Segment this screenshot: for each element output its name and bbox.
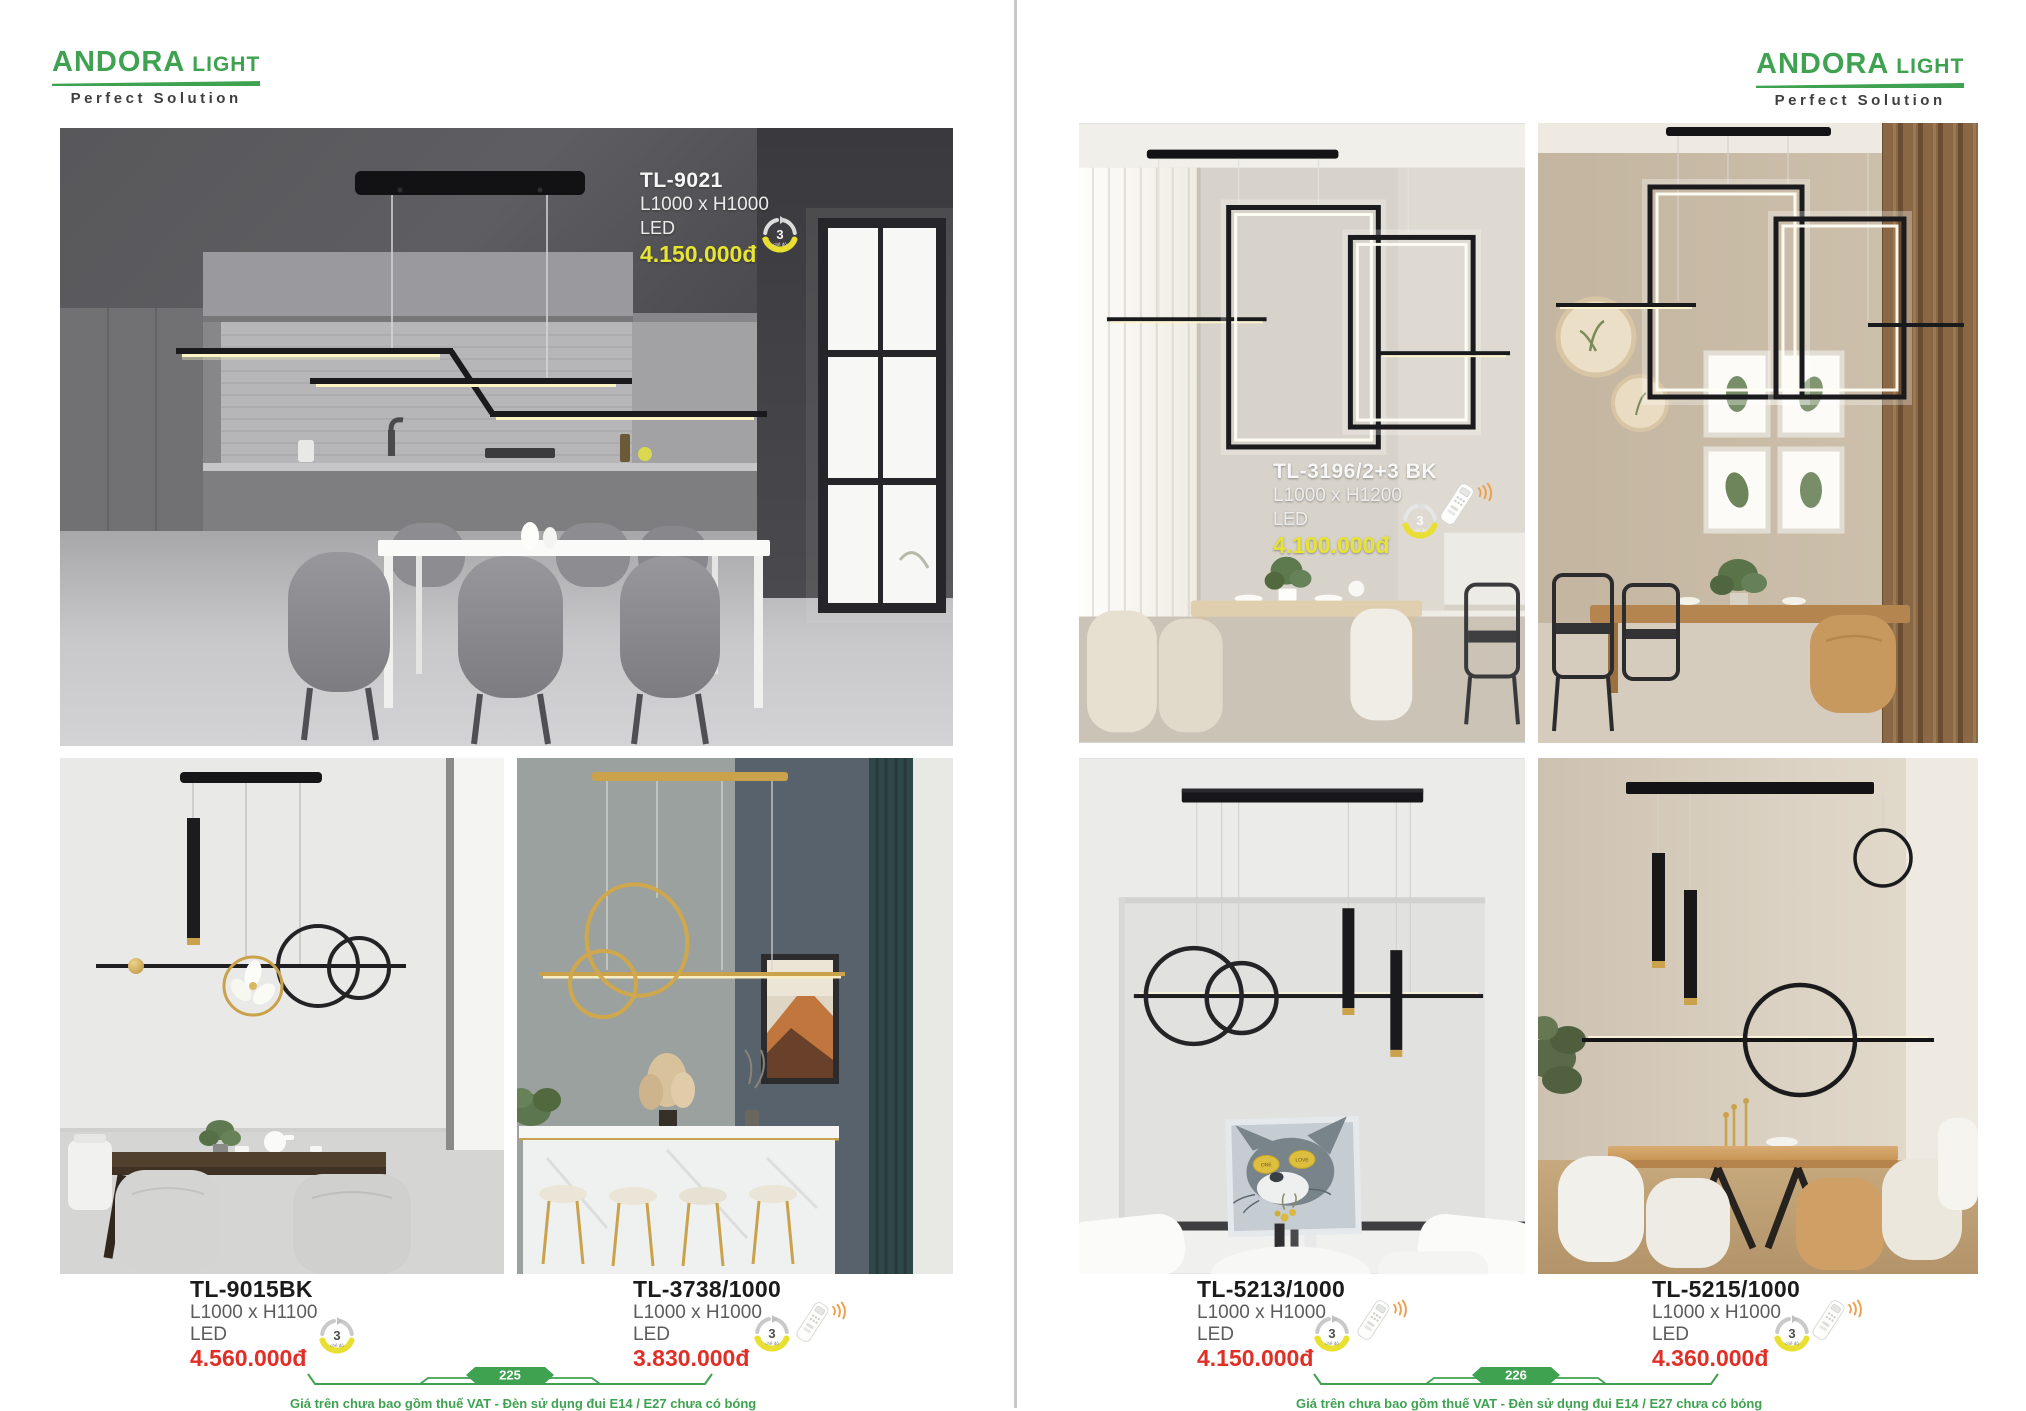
page-number-banner: 226 <box>1296 1366 1736 1390</box>
three-mode-badge: 3 chế độ <box>758 213 802 257</box>
brand-logo: ANDORA LIGHT Perfect Solution <box>1756 48 1964 109</box>
product-photo-tl-3738 <box>517 758 953 1274</box>
hero-product-info: TL-3196/2+3 BK L1000 x H1200 LED 4.100.0… <box>1273 459 1525 560</box>
product-photo-tl-5215 <box>1538 758 1978 1274</box>
page-number: 226 <box>1505 1368 1527 1383</box>
dining-scene-9015 <box>60 758 504 1274</box>
svg-text:LOVE: LOVE <box>1295 1157 1309 1163</box>
page-gutter-divider <box>1014 0 1017 1408</box>
svg-text:3: 3 <box>768 1326 775 1341</box>
brand-logo-row: ANDORA LIGHT <box>52 46 260 79</box>
dining-scene-5213: ONE LOVE <box>1079 758 1525 1274</box>
product-code: TL-9015BK <box>190 1276 390 1302</box>
brand-suffix: LIGHT <box>192 53 260 77</box>
dining-scene-3196a <box>1079 123 1525 743</box>
vat-disclaimer: Giá trên chưa bao gồm thuế VAT - Đèn sử … <box>290 1396 730 1411</box>
product-lamp-type: LED <box>190 1324 390 1345</box>
product-label-tl-5215: TL-5215/1000 L1000 x H1000 LED 4.360.000… <box>1652 1276 1882 1372</box>
brand-logo: ANDORA LIGHT Perfect Solution <box>52 46 260 107</box>
brand-underline <box>52 81 260 86</box>
three-mode-badge: 3 chế độ <box>315 1314 359 1358</box>
page-footer: 226 Giá trên chưa bao gồm thuế VAT - Đèn… <box>1296 1366 1736 1411</box>
vat-disclaimer: Giá trên chưa bao gồm thuế VAT - Đèn sử … <box>1296 1396 1736 1411</box>
svg-text:chế độ: chế độ <box>1785 1341 1799 1346</box>
page-number-banner: 225 <box>290 1366 730 1390</box>
svg-text:chế độ: chế độ <box>773 242 787 247</box>
product-size: L1000 x H1100 <box>190 1302 390 1324</box>
product-photo-tl-3196-a: TL-3196/2+3 BK L1000 x H1200 LED 4.100.0… <box>1079 123 1525 743</box>
hero-product-info: TL-9021 L1000 x H1000 LED 4.150.000đ 3 c… <box>640 168 953 269</box>
dining-scene-3738 <box>517 758 953 1274</box>
page-footer: 225 Giá trên chưa bao gồm thuế VAT - Đèn… <box>290 1366 730 1411</box>
svg-text:3: 3 <box>1788 1326 1795 1341</box>
cat-artwork: ONE LOVE <box>1225 1116 1362 1237</box>
brand-tagline: Perfect Solution <box>1756 92 1964 109</box>
brand-underline <box>1756 83 1964 88</box>
three-mode-badge-icon: 3 chế độ <box>315 1314 359 1358</box>
brand-name: ANDORA <box>52 46 185 79</box>
svg-text:3: 3 <box>1416 513 1423 528</box>
brand-suffix: LIGHT <box>1896 55 1964 79</box>
brand-name: ANDORA <box>1756 48 1889 81</box>
dining-scene-3196b <box>1538 123 1978 743</box>
product-code: TL-9021 <box>640 168 953 193</box>
product-photo-tl-5213: ONE LOVE <box>1079 758 1525 1274</box>
svg-text:ONE: ONE <box>1261 1162 1273 1168</box>
page-number: 225 <box>499 1368 521 1383</box>
product-photo-tl-9015bk <box>60 758 504 1274</box>
svg-text:chế độ: chế độ <box>330 1343 344 1348</box>
three-mode-badge-icon: 3 chế độ <box>758 213 802 257</box>
svg-text:3: 3 <box>776 227 783 242</box>
svg-text:3: 3 <box>1328 1326 1335 1341</box>
svg-text:3: 3 <box>333 1328 340 1343</box>
svg-text:chế độ: chế độ <box>1325 1341 1339 1346</box>
dining-scene-5215 <box>1538 758 1978 1274</box>
brand-logo-row: ANDORA LIGHT <box>1756 48 1964 81</box>
product-photo-tl-3196-b <box>1538 123 1978 743</box>
product-label-tl-3738: TL-3738/1000 L1000 x H1000 LED 3.830.000… <box>633 1276 863 1372</box>
product-label-tl-9015bk: TL-9015BK L1000 x H1100 LED 4.560.000đ 3… <box>190 1276 390 1372</box>
svg-text:chế độ: chế độ <box>765 1341 779 1346</box>
product-label-tl-5213: TL-5213/1000 L1000 x H1000 LED 4.150.000… <box>1197 1276 1427 1372</box>
svg-text:chế độ: chế độ <box>1413 528 1427 533</box>
brand-tagline: Perfect Solution <box>52 90 260 107</box>
window <box>806 208 953 623</box>
product-photo-tl-9021: TL-9021 L1000 x H1000 LED 4.150.000đ 3 c… <box>60 128 953 746</box>
